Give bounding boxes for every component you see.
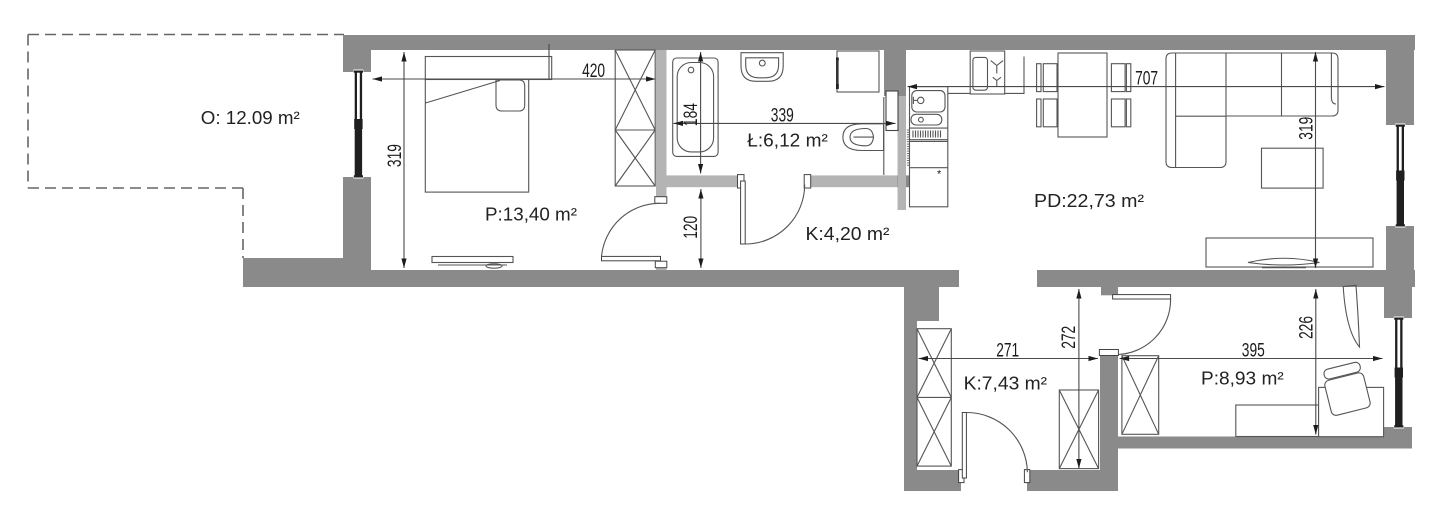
svg-text:271: 271 (996, 340, 1019, 362)
svg-text:120: 120 (680, 216, 702, 239)
svg-text:P:13,40 m²: P:13,40 m² (485, 205, 577, 225)
svg-text:319: 319 (384, 144, 406, 167)
svg-text:K:7,43 m²: K:7,43 m² (964, 373, 1048, 393)
svg-text:420: 420 (582, 60, 605, 82)
svg-text:P:8,93 m²: P:8,93 m² (1201, 368, 1284, 388)
svg-text:Ł:6,12 m²: Ł:6,12 m² (747, 131, 828, 151)
svg-text:O: 12.09 m²: O: 12.09 m² (201, 108, 300, 128)
svg-text:*: * (937, 169, 942, 181)
svg-text:395: 395 (1242, 340, 1265, 362)
svg-text:339: 339 (771, 104, 794, 126)
svg-text:K:4,20 m²: K:4,20 m² (806, 224, 890, 244)
svg-text:184: 184 (680, 103, 702, 126)
svg-text:226: 226 (1296, 316, 1318, 339)
svg-text:319: 319 (1296, 117, 1318, 140)
svg-text:707: 707 (1135, 68, 1158, 90)
svg-text:272: 272 (1058, 326, 1080, 349)
svg-text:PD:22,73 m²: PD:22,73 m² (1034, 191, 1144, 211)
